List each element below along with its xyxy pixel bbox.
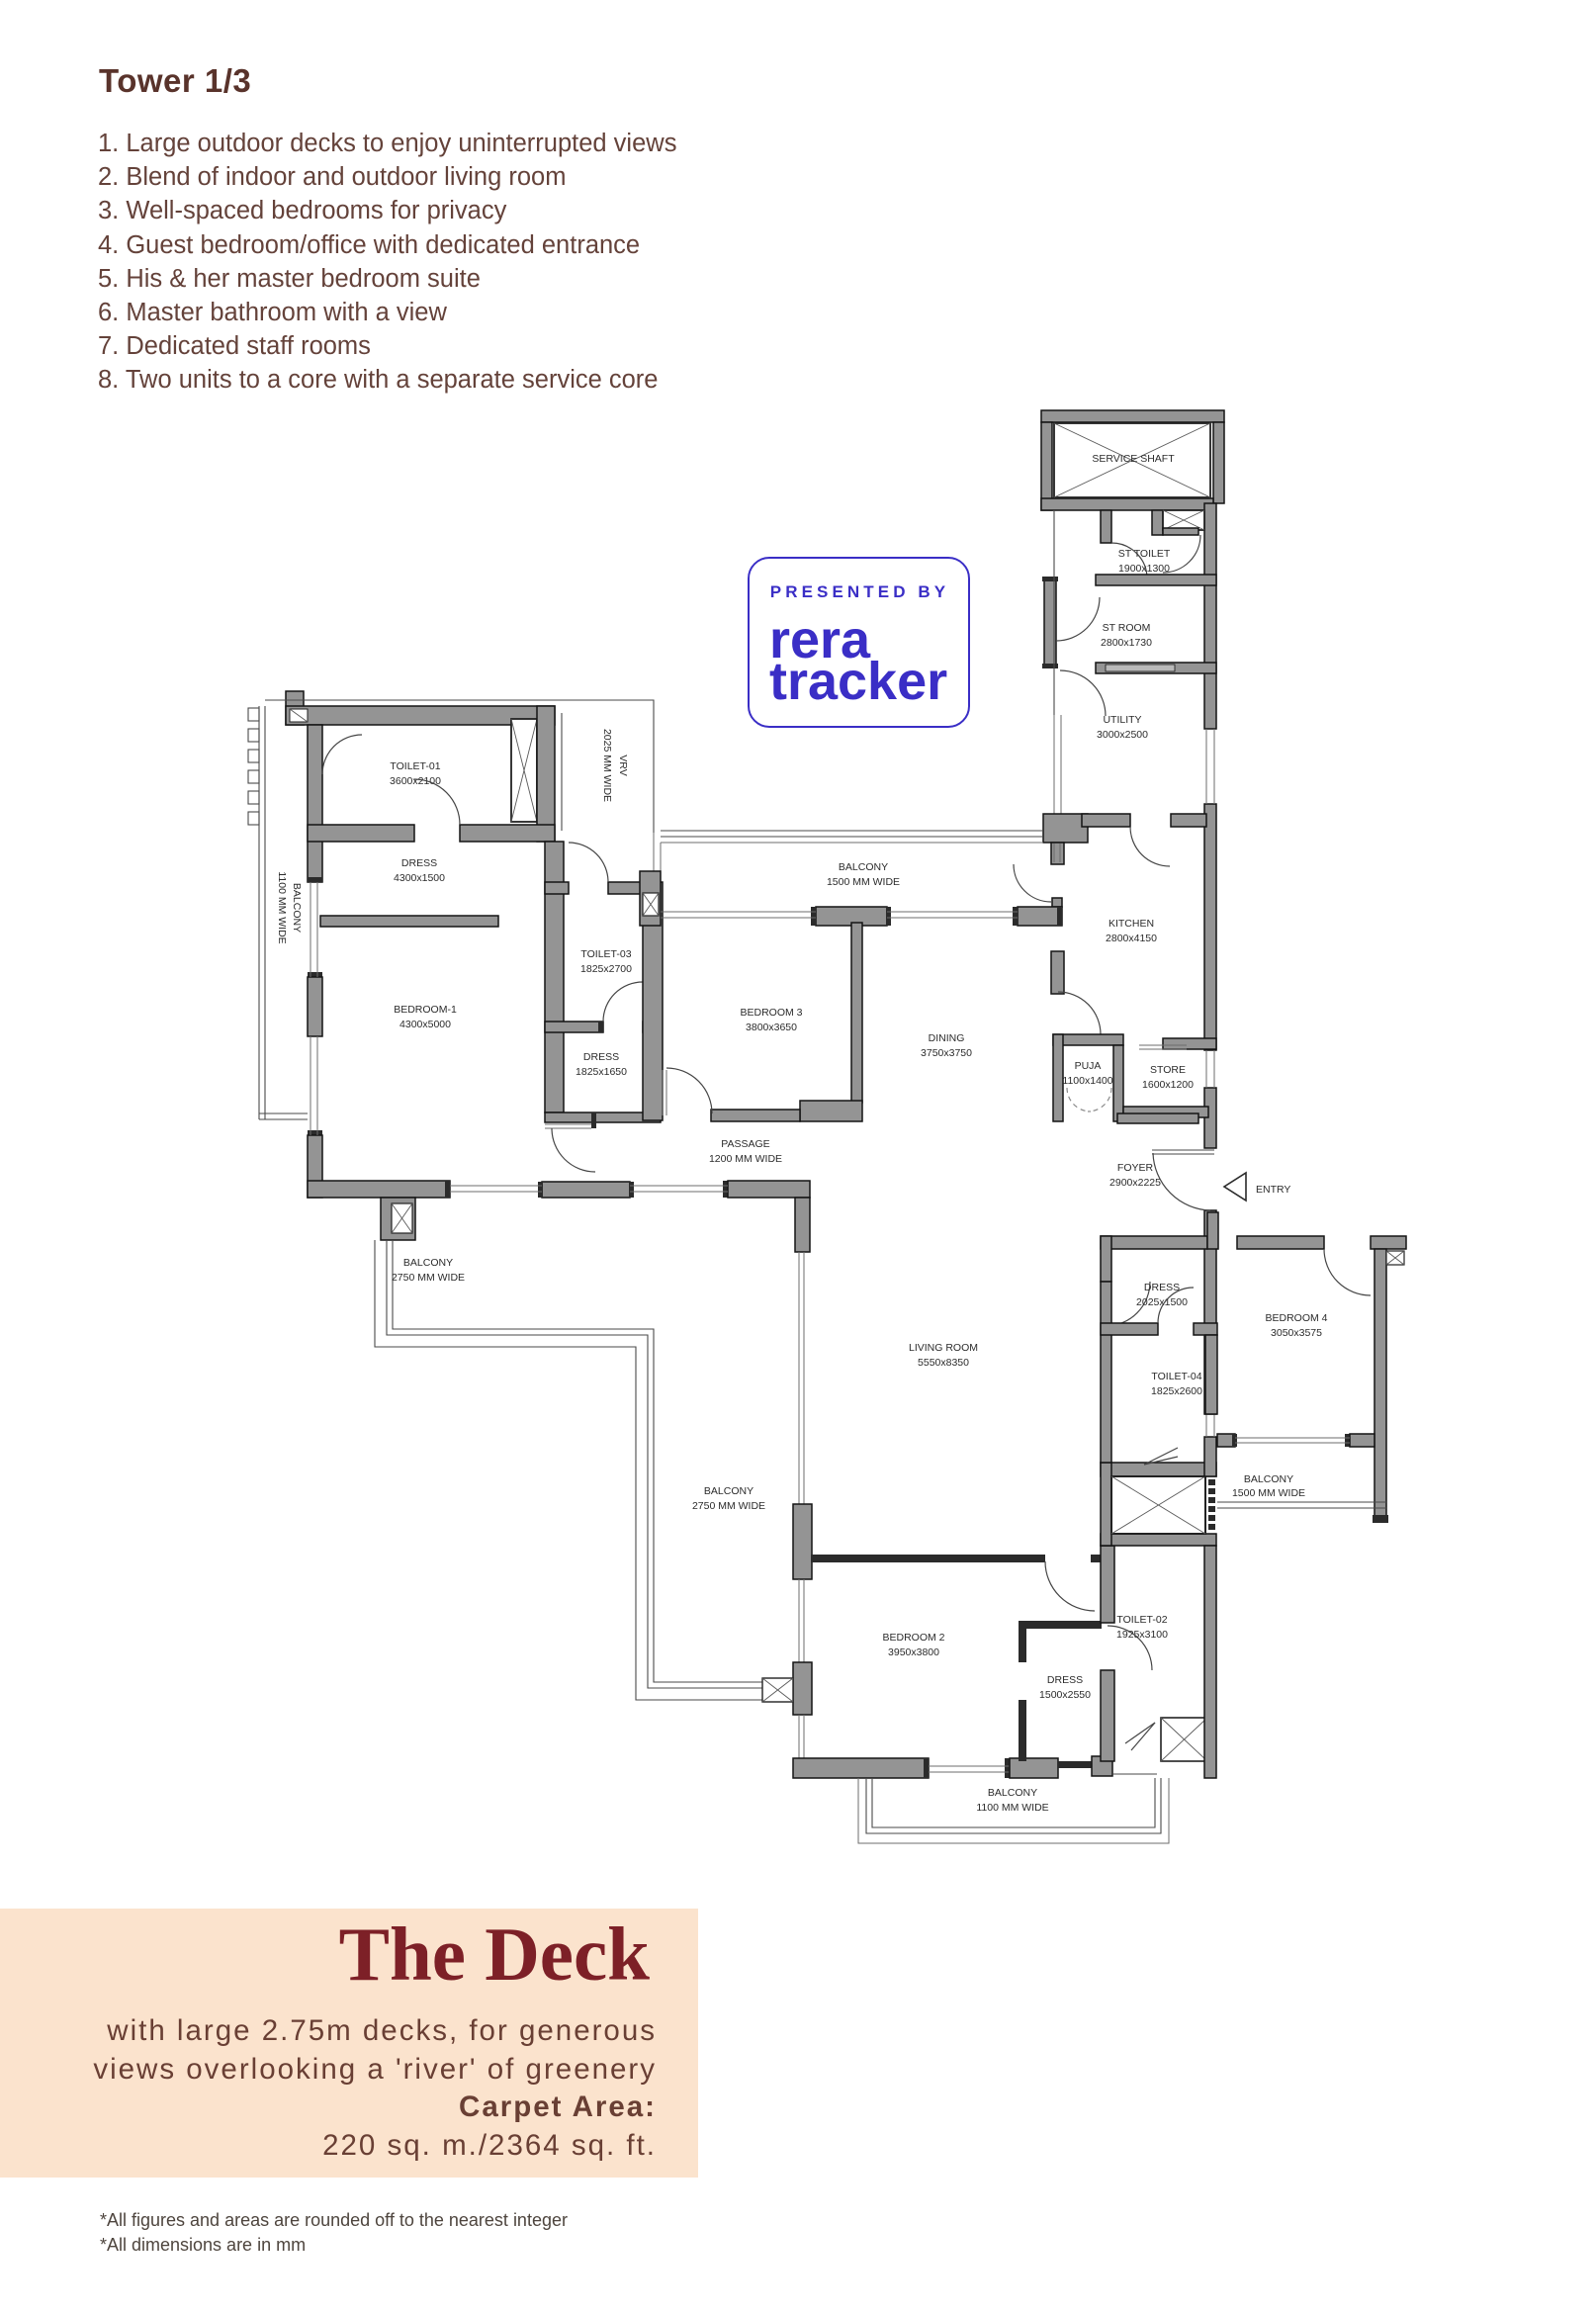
svg-text:1500x2550: 1500x2550 (1039, 1689, 1091, 1701)
svg-text:3050x3575: 3050x3575 (1271, 1327, 1322, 1339)
svg-text:BEDROOM 2: BEDROOM 2 (882, 1632, 944, 1644)
svg-text:TOILET-03: TOILET-03 (580, 948, 631, 960)
svg-text:BALCONY: BALCONY (988, 1787, 1037, 1799)
svg-text:UTILITY: UTILITY (1103, 714, 1141, 726)
svg-text:KITCHEN: KITCHEN (1108, 918, 1154, 930)
svg-text:DRESS: DRESS (1047, 1674, 1083, 1686)
svg-text:BALCONY: BALCONY (1244, 1473, 1293, 1485)
svg-text:DRESS: DRESS (1144, 1282, 1180, 1293)
svg-text:STORE: STORE (1150, 1064, 1186, 1076)
svg-text:3000x2500: 3000x2500 (1097, 729, 1148, 741)
svg-text:VRV: VRV (617, 755, 629, 775)
svg-text:4300x5000: 4300x5000 (399, 1019, 451, 1030)
svg-text:DRESS: DRESS (583, 1051, 619, 1063)
svg-text:ENTRY: ENTRY (1256, 1184, 1290, 1196)
svg-text:1925x3100: 1925x3100 (1116, 1629, 1168, 1641)
svg-text:2900x2225: 2900x2225 (1109, 1177, 1161, 1189)
svg-text:3950x3800: 3950x3800 (888, 1646, 939, 1658)
svg-text:2750 MM WIDE: 2750 MM WIDE (392, 1272, 465, 1284)
svg-text:DINING: DINING (929, 1032, 965, 1044)
svg-text:BALCONY: BALCONY (839, 861, 888, 873)
svg-text:TOILET-01: TOILET-01 (390, 760, 440, 772)
svg-text:BALCONY: BALCONY (291, 883, 303, 933)
svg-text:1100 MM WIDE: 1100 MM WIDE (276, 871, 288, 943)
svg-text:4300x1500: 4300x1500 (394, 872, 445, 884)
svg-text:PASSAGE: PASSAGE (721, 1138, 769, 1150)
svg-text:2750 MM WIDE: 2750 MM WIDE (692, 1500, 765, 1512)
svg-text:1825x2600: 1825x2600 (1151, 1385, 1202, 1397)
svg-text:3750x3750: 3750x3750 (921, 1047, 972, 1059)
svg-text:BALCONY: BALCONY (403, 1257, 453, 1269)
svg-text:BALCONY: BALCONY (704, 1485, 754, 1497)
svg-text:PUJA: PUJA (1075, 1060, 1102, 1072)
svg-text:TOILET-04: TOILET-04 (1151, 1371, 1201, 1382)
svg-text:1900x1300: 1900x1300 (1118, 563, 1170, 575)
svg-text:1200 MM WIDE: 1200 MM WIDE (709, 1153, 782, 1165)
svg-text:1500 MM WIDE: 1500 MM WIDE (1232, 1487, 1305, 1499)
svg-text:LIVING ROOM: LIVING ROOM (909, 1342, 978, 1354)
svg-text:TOILET-02: TOILET-02 (1116, 1614, 1167, 1626)
svg-text:BEDROOM 4: BEDROOM 4 (1265, 1312, 1327, 1324)
svg-text:1100 MM WIDE: 1100 MM WIDE (976, 1802, 1048, 1814)
svg-text:2800x4150: 2800x4150 (1106, 933, 1157, 944)
svg-text:FOYER: FOYER (1117, 1162, 1154, 1174)
svg-text:SERVICE SHAFT: SERVICE SHAFT (1092, 453, 1175, 465)
svg-text:DRESS: DRESS (401, 857, 437, 869)
svg-text:1825x1650: 1825x1650 (576, 1066, 627, 1078)
svg-text:BEDROOM-1: BEDROOM-1 (394, 1004, 457, 1016)
svg-text:1825x2700: 1825x2700 (580, 963, 632, 975)
svg-text:3800x3650: 3800x3650 (746, 1022, 797, 1033)
svg-text:1600x1200: 1600x1200 (1142, 1079, 1194, 1091)
svg-text:BEDROOM 3: BEDROOM 3 (740, 1007, 802, 1019)
svg-text:2800x1730: 2800x1730 (1101, 637, 1152, 649)
svg-text:1500 MM WIDE: 1500 MM WIDE (827, 876, 900, 888)
svg-text:ST ROOM: ST ROOM (1103, 622, 1151, 634)
svg-text:5550x8350: 5550x8350 (918, 1357, 969, 1369)
svg-text:ST TOILET: ST TOILET (1118, 548, 1171, 560)
svg-text:1100x1400: 1100x1400 (1062, 1075, 1112, 1087)
svg-text:2025 MM WIDE: 2025 MM WIDE (601, 729, 613, 802)
svg-text:3600x2100: 3600x2100 (390, 775, 441, 787)
